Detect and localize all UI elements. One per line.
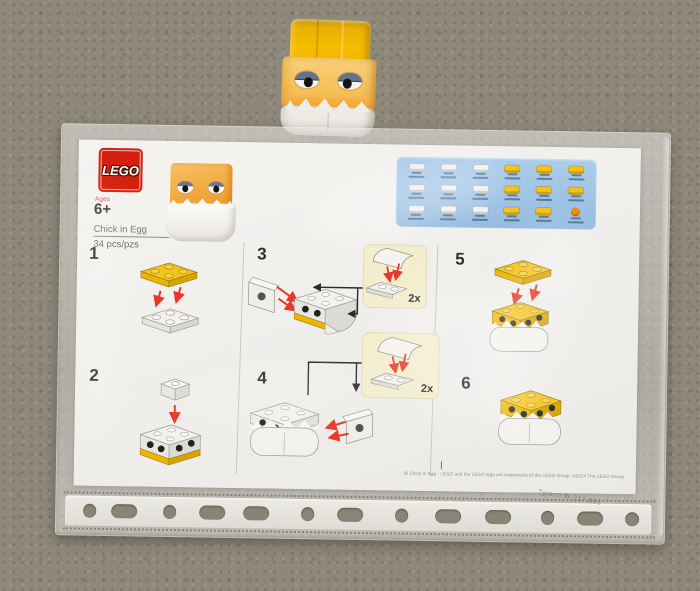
printed-chick-left-eye (177, 181, 193, 193)
part-white-icon (473, 165, 488, 172)
part-thumbnail (529, 163, 560, 183)
part-yellow-icon (568, 187, 583, 194)
part-yellow-icon (536, 208, 551, 215)
set-title: Chick in Egg (93, 224, 169, 238)
callout-1-quantity: 2x (408, 293, 420, 305)
printed-chick-right-eye (208, 182, 224, 194)
part-thumbnail (433, 182, 464, 202)
part-white-icon (473, 186, 488, 193)
part-thumbnail (528, 184, 559, 204)
punched-hole (243, 506, 269, 520)
step-number-5: 5 (455, 249, 465, 269)
punched-hole (485, 510, 511, 524)
part-yellow-icon (537, 166, 552, 173)
part-thumbnail (560, 205, 591, 225)
part-yellow-icon (569, 166, 584, 173)
step-6-diagram (482, 384, 583, 471)
step-5-diagram (476, 258, 578, 360)
punched-hole (301, 507, 314, 521)
callout-box-1: 2x (362, 244, 427, 309)
printed-eggshell (165, 203, 236, 242)
punched-hole (337, 508, 363, 522)
punched-hole (163, 505, 176, 519)
part-yellow-icon (505, 165, 520, 172)
assembled-chick-model (280, 18, 378, 137)
punched-hole (577, 511, 603, 525)
punched-hole (83, 504, 96, 518)
part-thumbnail (401, 161, 432, 181)
punched-hole (395, 509, 408, 523)
photo-scene: { "sheet": { "brand": "LEGO", "ages_labe… (0, 0, 700, 591)
punched-hole (111, 504, 137, 518)
part-thumbnail (465, 183, 496, 203)
part-orange-icon (571, 207, 580, 216)
part-thumbnail (561, 163, 592, 183)
small-mark (441, 461, 442, 469)
step-number-2: 2 (89, 366, 99, 386)
callout-box-2: 2x (361, 332, 440, 399)
instruction-sheet: LEGO Ages 6+ Chick in Egg 34 pcs/pzs 1 2… (74, 140, 641, 495)
lego-logo: LEGO (98, 148, 143, 193)
lego-logo-text: LEGO (102, 162, 139, 178)
parts-grid (396, 157, 597, 230)
step-1-diagram (126, 256, 222, 352)
punched-hole (625, 512, 639, 526)
part-white-icon (441, 206, 456, 213)
punched-hole (199, 505, 225, 519)
part-thumbnail (433, 161, 464, 181)
part-thumbnail (497, 183, 528, 203)
part-thumbnail (560, 184, 591, 204)
part-white-icon (409, 185, 424, 192)
part-thumbnail (496, 204, 527, 224)
part-thumbnail (401, 182, 432, 202)
part-white-icon (441, 164, 456, 171)
step-2-diagram (124, 376, 220, 472)
part-thumbnail (433, 203, 464, 223)
part-white-icon (441, 185, 456, 192)
step-3-diagram (244, 254, 368, 361)
part-thumbnail (465, 162, 496, 182)
fine-print: BI Chick in Egg · LEGO and the LEGO logo… (404, 471, 646, 480)
plastic-sleeve: LEGO Ages 6+ Chick in Egg 34 pcs/pzs 1 2… (55, 123, 671, 545)
part-white-icon (472, 207, 487, 214)
step-number-6: 6 (461, 374, 471, 394)
age-rating: 6+ (94, 201, 111, 218)
punched-hole (541, 511, 554, 525)
part-thumbnail (497, 162, 528, 182)
part-white-icon (409, 206, 424, 213)
part-yellow-icon (504, 207, 519, 214)
punched-hole (435, 509, 461, 523)
part-yellow-icon (536, 187, 551, 194)
sleeve-edge-highlight (656, 137, 669, 537)
part-yellow-icon (505, 186, 520, 193)
step-number-1: 1 (89, 244, 99, 264)
piece-count: 34 pcs/pzs (93, 239, 139, 251)
callout-2-quantity: 2x (421, 383, 433, 395)
part-white-icon (409, 164, 424, 171)
part-thumbnail (528, 205, 559, 225)
part-thumbnail (401, 203, 432, 223)
part-thumbnail (464, 204, 495, 224)
printed-chick-image (163, 161, 238, 250)
